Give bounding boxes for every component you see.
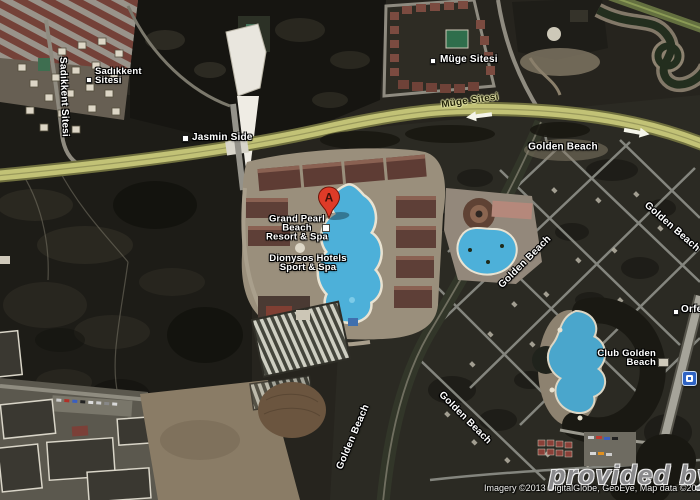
grand-pearl-poi-icon xyxy=(322,224,330,232)
transit-stop-icon[interactable] xyxy=(682,371,697,386)
east-resort xyxy=(444,188,542,284)
poi-label-sadikkent: Sadıkkent Sitesi xyxy=(95,67,142,85)
street-label-golden-beach-1: Golden Beach xyxy=(528,142,598,153)
provider-watermark: provided by Le xyxy=(549,460,700,491)
poi-label-jasmin-side: Jasmin Side xyxy=(192,132,253,143)
poi-label-grand-pearl-line3: Resort & Spa xyxy=(266,233,328,242)
sadikkent-poi-dot xyxy=(86,77,92,83)
transit-stop-glyph xyxy=(686,375,693,382)
poi-label-muge-sitesi: Müge Sitesi xyxy=(440,54,498,65)
lodging-icon xyxy=(658,358,669,367)
jasmin-side-poi-dot xyxy=(182,135,189,142)
poi-label-dionysos: Dionysos Hotels Sport & Spa xyxy=(269,254,346,272)
east-resort-pool xyxy=(458,229,515,274)
poi-label-dionysos-line2: Sport & Spa xyxy=(269,263,346,272)
orfeus-poi-dot xyxy=(673,309,679,315)
poi-label-club-golden-line2: Beach xyxy=(597,358,656,367)
marker-a-pin[interactable]: A xyxy=(317,186,341,220)
poi-label-sadikkent-line2: Sitesi xyxy=(95,76,142,85)
marker-a-letter: A xyxy=(325,191,334,205)
poi-label-orfeus: Orfeus xyxy=(681,304,700,315)
satellite-map-image[interactable]: A Sadıkkent Sitesi Sadıkkent Sitesi Jasm… xyxy=(0,0,700,500)
poi-label-club-golden: Club Golden Beach xyxy=(597,349,656,367)
muge-poi-dot xyxy=(430,58,436,64)
muge-sitesi-complex xyxy=(384,0,495,96)
